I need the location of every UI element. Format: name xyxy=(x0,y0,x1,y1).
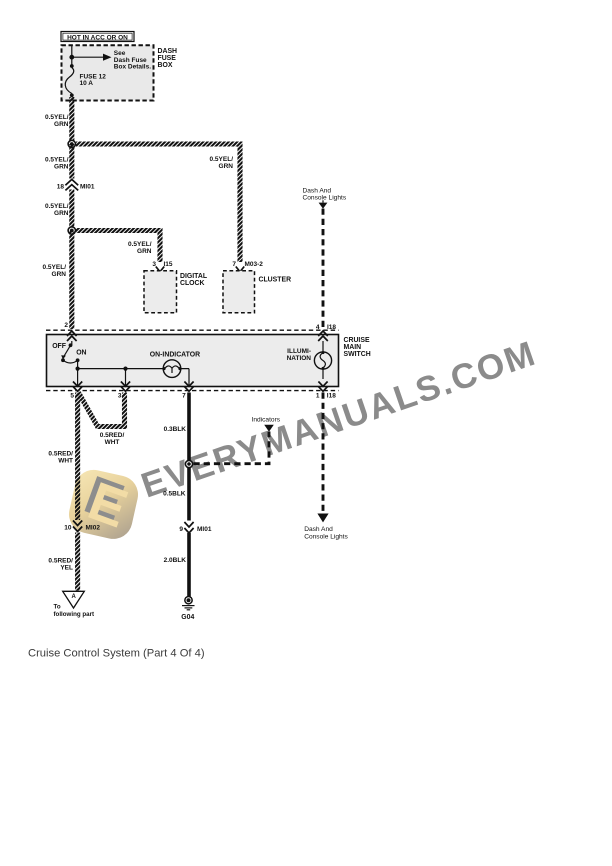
svg-text:BOX: BOX xyxy=(158,62,173,69)
svg-text:Box Details.: Box Details. xyxy=(114,63,151,70)
svg-text:0.5YEL/: 0.5YEL/ xyxy=(45,203,69,210)
svg-text:OFF: OFF xyxy=(52,343,66,350)
svg-text:0.5YEL/: 0.5YEL/ xyxy=(128,241,152,248)
svg-text:5: 5 xyxy=(70,393,74,400)
svg-text:ON-INDICATOR: ON-INDICATOR xyxy=(150,351,200,358)
svg-text:Console Lights: Console Lights xyxy=(304,534,348,541)
svg-text:Cruise Control System (Part 4: Cruise Control System (Part 4 Of 4) xyxy=(28,648,205,660)
svg-text:GRN: GRN xyxy=(52,271,67,278)
svg-text:0.5RED/: 0.5RED/ xyxy=(100,432,125,439)
svg-text:MI01: MI01 xyxy=(197,526,212,533)
svg-text:Dash And: Dash And xyxy=(303,188,332,195)
svg-text:10: 10 xyxy=(64,525,72,532)
svg-text:GRN: GRN xyxy=(54,210,69,217)
svg-text:DASH: DASH xyxy=(158,48,178,55)
svg-text:I15: I15 xyxy=(164,261,173,268)
svg-text:G04: G04 xyxy=(181,614,194,621)
svg-text:DIGITAL: DIGITAL xyxy=(180,273,207,280)
svg-text:FUSE: FUSE xyxy=(158,55,177,62)
svg-text:To: To xyxy=(54,604,61,611)
svg-text:HOT IN ACC OR ON: HOT IN ACC OR ON xyxy=(67,35,128,42)
svg-text:A: A xyxy=(72,594,77,600)
svg-text:0.5YEL/: 0.5YEL/ xyxy=(43,264,67,271)
svg-text:MI01: MI01 xyxy=(80,184,95,191)
svg-text:0.5RED/: 0.5RED/ xyxy=(48,558,73,565)
svg-text:GRN: GRN xyxy=(137,248,152,255)
svg-text:GRN: GRN xyxy=(219,163,234,170)
svg-text:GRN: GRN xyxy=(54,121,69,128)
svg-text:10 A: 10 A xyxy=(80,80,94,87)
svg-text:2.0BLK: 2.0BLK xyxy=(164,557,187,564)
svg-text:ILLUMI-: ILLUMI- xyxy=(287,348,311,355)
svg-text:GRN: GRN xyxy=(54,164,69,171)
svg-text:7: 7 xyxy=(182,393,186,400)
svg-text:CLUSTER: CLUSTER xyxy=(259,277,292,284)
svg-text:CRUISE: CRUISE xyxy=(344,337,370,344)
svg-text:Dash And: Dash And xyxy=(304,526,333,533)
svg-text:ON: ON xyxy=(76,349,86,356)
svg-text:0.5YEL/: 0.5YEL/ xyxy=(210,156,234,163)
svg-text:following part: following part xyxy=(54,611,95,618)
svg-text:SWITCH: SWITCH xyxy=(344,351,371,358)
svg-text:3: 3 xyxy=(118,393,122,400)
svg-text:I18: I18 xyxy=(327,393,336,400)
svg-text:Indicators: Indicators xyxy=(252,417,281,424)
svg-text:Console Lights: Console Lights xyxy=(303,195,347,202)
svg-text:YEL: YEL xyxy=(60,565,73,572)
svg-text:0.5RED/: 0.5RED/ xyxy=(48,451,73,458)
svg-text:0.5YEL/: 0.5YEL/ xyxy=(45,114,69,121)
svg-text:WHT: WHT xyxy=(58,458,73,465)
svg-text:0.5BLK: 0.5BLK xyxy=(163,491,186,498)
svg-text:MAIN: MAIN xyxy=(344,344,362,351)
svg-text:M03-2: M03-2 xyxy=(245,261,264,268)
svg-text:MI02: MI02 xyxy=(86,525,101,532)
svg-text:2: 2 xyxy=(64,322,68,329)
svg-text:WHT: WHT xyxy=(105,439,120,446)
svg-text:9: 9 xyxy=(179,526,183,533)
svg-text:18: 18 xyxy=(57,184,65,191)
svg-text:NATION: NATION xyxy=(287,355,312,362)
svg-text:CLOCK: CLOCK xyxy=(180,280,205,287)
svg-text:0.3BLK: 0.3BLK xyxy=(164,426,187,433)
svg-text:1: 1 xyxy=(316,393,320,400)
svg-text:0.5YEL/: 0.5YEL/ xyxy=(45,157,69,164)
